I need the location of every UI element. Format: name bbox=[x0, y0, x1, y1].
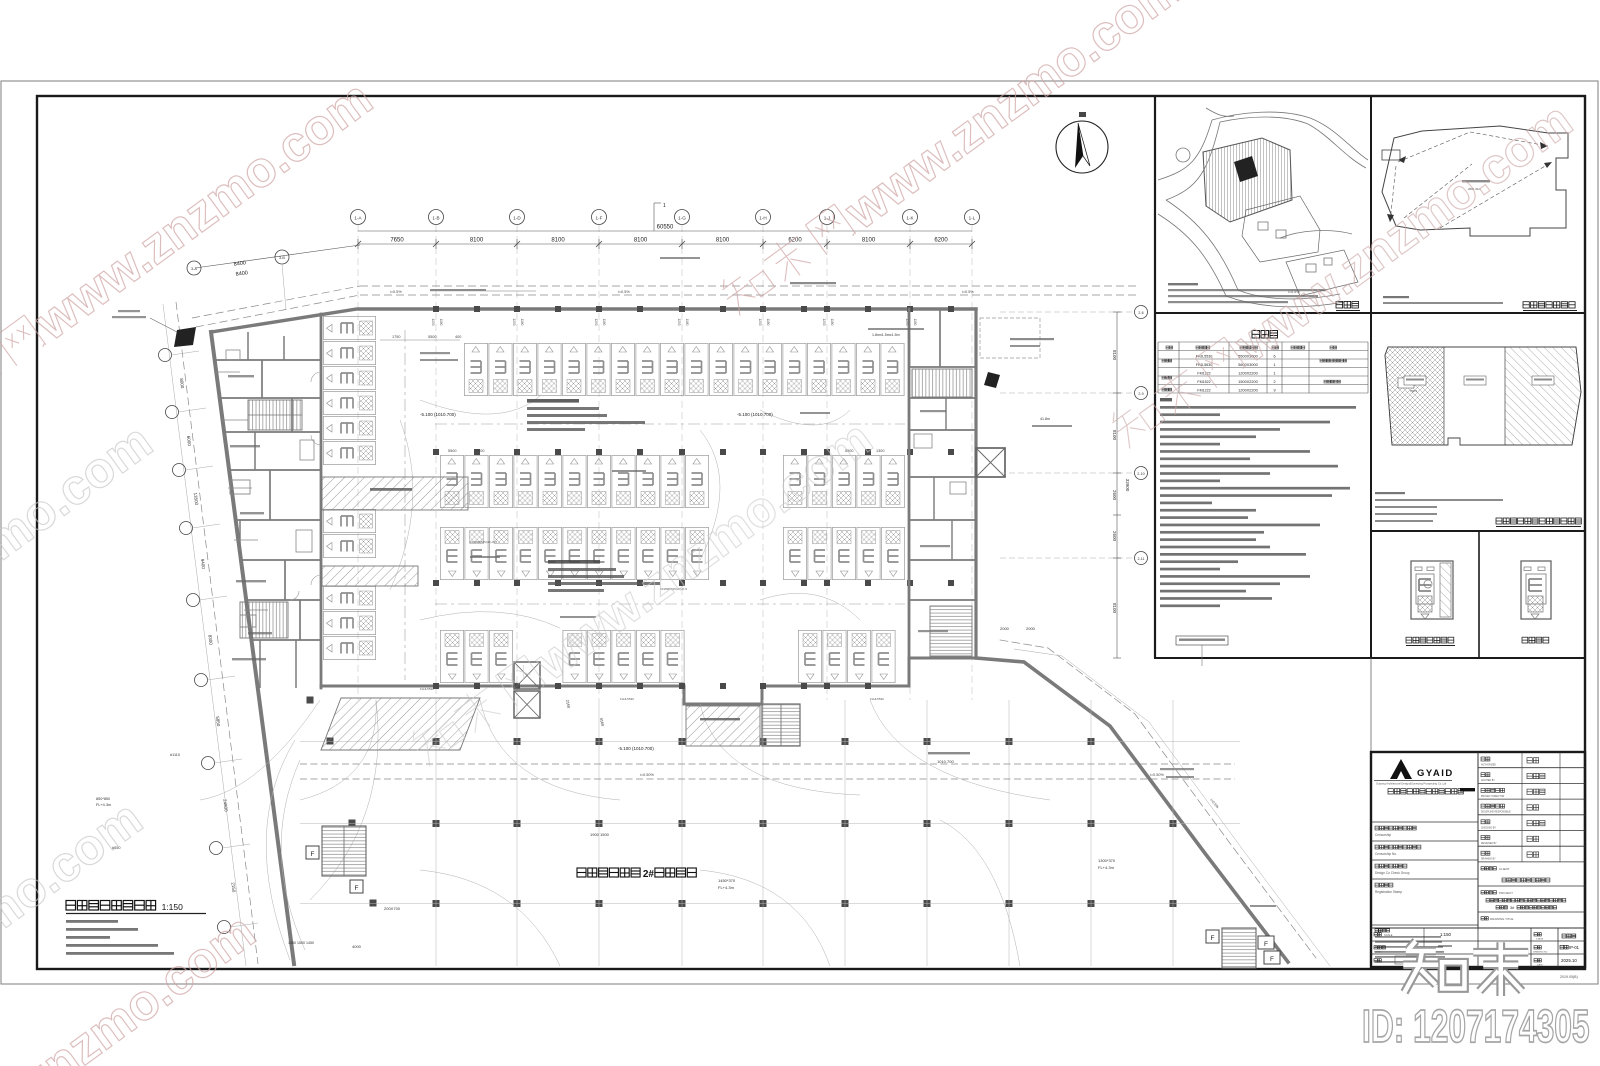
svg-text:3-A: 3-A bbox=[191, 267, 197, 271]
svg-text:i=0.50%: i=0.50% bbox=[640, 773, 654, 777]
svg-text:6200: 6200 bbox=[934, 238, 948, 244]
svg-text:1-G: 1-G bbox=[678, 216, 686, 221]
svg-text:400: 400 bbox=[455, 335, 461, 339]
svg-text:STAGE: STAGE bbox=[1536, 938, 1544, 941]
svg-text:-5.100 (1010.700): -5.100 (1010.700) bbox=[737, 412, 773, 417]
svg-text:1-K: 1-K bbox=[906, 216, 914, 221]
svg-text:41.8m: 41.8m bbox=[1040, 417, 1050, 421]
svg-text:1200: 1200 bbox=[677, 318, 681, 325]
svg-text:2-11: 2-11 bbox=[1138, 557, 1145, 561]
svg-text:8100: 8100 bbox=[470, 238, 484, 244]
svg-text:FM1222: FM1222 bbox=[1197, 372, 1210, 376]
svg-text:8100: 8100 bbox=[1112, 603, 1117, 614]
svg-text:1180: 1180 bbox=[913, 319, 917, 326]
svg-text:1750: 1750 bbox=[392, 335, 400, 339]
svg-text:1-H: 1-H bbox=[759, 216, 766, 221]
svg-text:1:150: 1:150 bbox=[1440, 932, 1452, 937]
svg-text:GYAID: GYAID bbox=[1417, 768, 1454, 779]
svg-text:1200: 1200 bbox=[905, 318, 909, 325]
svg-text:Censorship No.: Censorship No. bbox=[1375, 852, 1397, 856]
svg-text:1450 1500 1450: 1450 1500 1450 bbox=[288, 941, 314, 945]
svg-text:FHJL5530: FHJL5530 bbox=[420, 687, 434, 691]
svg-text:Design Co Check Group: Design Co Check Group bbox=[1375, 871, 1410, 875]
svg-text:AUTHORIZED: AUTHORIZED bbox=[1481, 764, 1496, 767]
svg-text:DATE: DATE bbox=[1537, 964, 1543, 967]
svg-text:1180: 1180 bbox=[602, 319, 606, 326]
svg-text:8100: 8100 bbox=[1112, 350, 1117, 361]
svg-text:5500: 5500 bbox=[428, 335, 436, 339]
svg-text:5500: 5500 bbox=[448, 449, 456, 453]
svg-text:FHJL5530: FHJL5530 bbox=[870, 697, 884, 701]
svg-text:2-10: 2-10 bbox=[1137, 472, 1144, 476]
svg-text:2600: 2600 bbox=[1112, 490, 1117, 501]
svg-text:FL+4.3m: FL+4.3m bbox=[718, 885, 735, 890]
svg-text:1-B: 1-B bbox=[432, 216, 439, 221]
svg-text:2-6: 2-6 bbox=[1138, 311, 1143, 315]
svg-text:ID: 1207174305: ID: 1207174305 bbox=[1362, 1001, 1590, 1052]
svg-text:-5.100 (1010.700): -5.100 (1010.700) bbox=[420, 412, 456, 417]
svg-text:i=0.5%: i=0.5% bbox=[962, 290, 974, 294]
svg-text:Registration Stamp: Registration Stamp bbox=[1375, 890, 1402, 894]
svg-text:1.8mx1.5mx1.5m: 1.8mx1.5mx1.5m bbox=[872, 333, 900, 337]
svg-text:DRAWING NO: DRAWING NO bbox=[1533, 951, 1548, 954]
svg-text:2600: 2600 bbox=[1112, 531, 1117, 542]
svg-text:1450*370: 1450*370 bbox=[718, 878, 736, 883]
svg-text:33900: 33900 bbox=[1125, 479, 1130, 492]
svg-text:#1110: #1110 bbox=[170, 753, 180, 757]
svg-text:FM1222: FM1222 bbox=[1197, 389, 1210, 393]
svg-text:IP-01: IP-01 bbox=[1569, 945, 1580, 950]
svg-text:1900 1500: 1900 1500 bbox=[590, 832, 610, 837]
svg-text:DESIGNED BY: DESIGNED BY bbox=[1481, 843, 1497, 845]
svg-text:60550: 60550 bbox=[657, 225, 674, 231]
svg-text:2019.05(B): 2019.05(B) bbox=[1560, 975, 1578, 979]
svg-text:758.5: 758.5 bbox=[1410, 389, 1417, 393]
svg-text:2#: 2# bbox=[643, 869, 655, 880]
svg-text:1500X2200: 1500X2200 bbox=[1238, 380, 1257, 384]
svg-text:i=0.5%: i=0.5% bbox=[390, 290, 402, 294]
svg-text:1300*370: 1300*370 bbox=[1098, 858, 1116, 863]
svg-text:1300: 1300 bbox=[476, 449, 484, 453]
svg-text:7650: 7650 bbox=[390, 238, 404, 244]
svg-text:Guiyang Architectural Design&S: Guiyang Architectural Design&Surveying P… bbox=[1376, 782, 1447, 786]
svg-text:F: F bbox=[355, 885, 359, 892]
svg-text:2000: 2000 bbox=[1026, 626, 1036, 631]
svg-text:1-L: 1-L bbox=[969, 216, 976, 221]
svg-text:2: 2 bbox=[1273, 380, 1275, 384]
svg-text:2-9: 2-9 bbox=[1138, 392, 1143, 396]
svg-text:8100: 8100 bbox=[551, 238, 565, 244]
svg-text:2025.10: 2025.10 bbox=[1561, 958, 1577, 963]
svg-text:1200X2200: 1200X2200 bbox=[1238, 372, 1257, 376]
svg-text:Censorship: Censorship bbox=[1375, 833, 1391, 837]
svg-text:SCALE: SCALE bbox=[1384, 933, 1393, 937]
svg-text:ASSNO: ASSNO bbox=[1374, 951, 1382, 954]
svg-text:1200: 1200 bbox=[822, 318, 826, 325]
svg-text:1200: 1200 bbox=[758, 318, 762, 325]
svg-text:FHJL5530: FHJL5530 bbox=[620, 697, 634, 701]
svg-text:F: F bbox=[1270, 956, 1274, 963]
svg-text:DRAWING BY: DRAWING BY bbox=[1481, 858, 1496, 861]
svg-text:PROJECT DIRECTOR: PROJECT DIRECTOR bbox=[1481, 796, 1505, 798]
svg-text:DRAWING TITLE: DRAWING TITLE bbox=[1490, 917, 1513, 921]
svg-text:1010.700: 1010.700 bbox=[937, 759, 954, 764]
svg-text:PROJECT: PROJECT bbox=[1499, 891, 1513, 895]
svg-text:1-A: 1-A bbox=[354, 216, 362, 221]
svg-text:i=0.50%: i=0.50% bbox=[1150, 773, 1164, 777]
svg-text:F: F bbox=[311, 851, 315, 858]
svg-text:1:150: 1:150 bbox=[162, 902, 184, 912]
svg-text:AUDITED BY: AUDITED BY bbox=[1481, 779, 1495, 782]
svg-text:200X700: 200X700 bbox=[384, 906, 401, 911]
svg-text:CHECKED BY: CHECKED BY bbox=[1481, 827, 1496, 829]
svg-text:1: 1 bbox=[1273, 372, 1275, 376]
svg-text:FM1522: FM1522 bbox=[1197, 380, 1210, 384]
svg-text:8100: 8100 bbox=[716, 238, 730, 244]
svg-text:1180: 1180 bbox=[685, 319, 689, 326]
svg-text:8100: 8100 bbox=[1112, 430, 1117, 441]
svg-text:8100: 8100 bbox=[634, 238, 648, 244]
svg-text:CLIENT: CLIENT bbox=[1499, 867, 1510, 871]
svg-text:4000: 4000 bbox=[352, 944, 362, 949]
svg-text:F: F bbox=[1211, 935, 1215, 942]
svg-text:1: 1 bbox=[1273, 363, 1275, 367]
svg-text:FL+4.3m: FL+4.3m bbox=[1098, 865, 1115, 870]
svg-text:F: F bbox=[1264, 941, 1268, 948]
svg-text:1200X2200: 1200X2200 bbox=[1238, 389, 1257, 393]
svg-text:1200: 1200 bbox=[431, 318, 435, 325]
svg-text:9: 9 bbox=[1273, 389, 1275, 393]
svg-text:DISCIPLINE RESPONSIBLE: DISCIPLINE RESPONSIBLE bbox=[1481, 812, 1511, 814]
svg-text:1-D: 1-D bbox=[513, 216, 521, 221]
svg-text:1180: 1180 bbox=[439, 319, 443, 326]
svg-text:1-F: 1-F bbox=[596, 216, 603, 221]
svg-text:-5.100 (1010.700): -5.100 (1010.700) bbox=[618, 746, 654, 751]
svg-text:1180: 1180 bbox=[830, 319, 834, 326]
svg-text:1180: 1180 bbox=[766, 319, 770, 326]
svg-text:1180: 1180 bbox=[520, 319, 524, 326]
svg-text:i=0.5%: i=0.5% bbox=[618, 290, 630, 294]
svg-text:FHJL5630: FHJL5630 bbox=[1196, 363, 1213, 367]
svg-text:2000: 2000 bbox=[1000, 626, 1010, 631]
svg-text:1200: 1200 bbox=[594, 318, 598, 325]
svg-text:KFWM5525(JK)-P-5: KFWM5525(JK)-P-5 bbox=[470, 540, 497, 544]
svg-text:3-B: 3-B bbox=[279, 256, 285, 260]
svg-text:1: 1 bbox=[663, 203, 666, 209]
svg-text:1200: 1200 bbox=[512, 318, 516, 325]
